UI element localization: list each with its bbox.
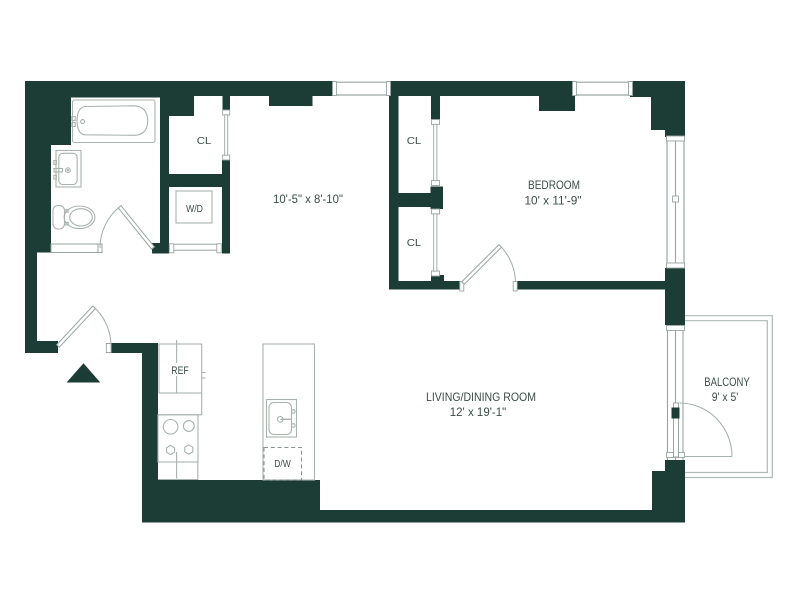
svg-text:9' x 5': 9' x 5': [712, 391, 739, 404]
svg-text:BALCONY: BALCONY: [704, 375, 750, 389]
svg-text:10' x 11'-9": 10' x 11'-9": [525, 195, 582, 208]
svg-text:W/D: W/D: [186, 203, 203, 215]
svg-text:12' x 19'-1": 12' x 19'-1": [450, 406, 507, 419]
svg-text:D/W: D/W: [274, 459, 291, 470]
svg-text:REF: REF: [171, 365, 189, 377]
svg-text:CL: CL: [407, 135, 422, 147]
svg-text:LIVING/DINING ROOM: LIVING/DINING ROOM: [426, 390, 536, 404]
svg-text:CL: CL: [407, 237, 422, 249]
svg-text:BEDROOM: BEDROOM: [528, 178, 580, 192]
svg-text:CL: CL: [197, 135, 212, 147]
svg-text:10'-5" x 8'-10": 10'-5" x 8'-10": [273, 193, 343, 206]
